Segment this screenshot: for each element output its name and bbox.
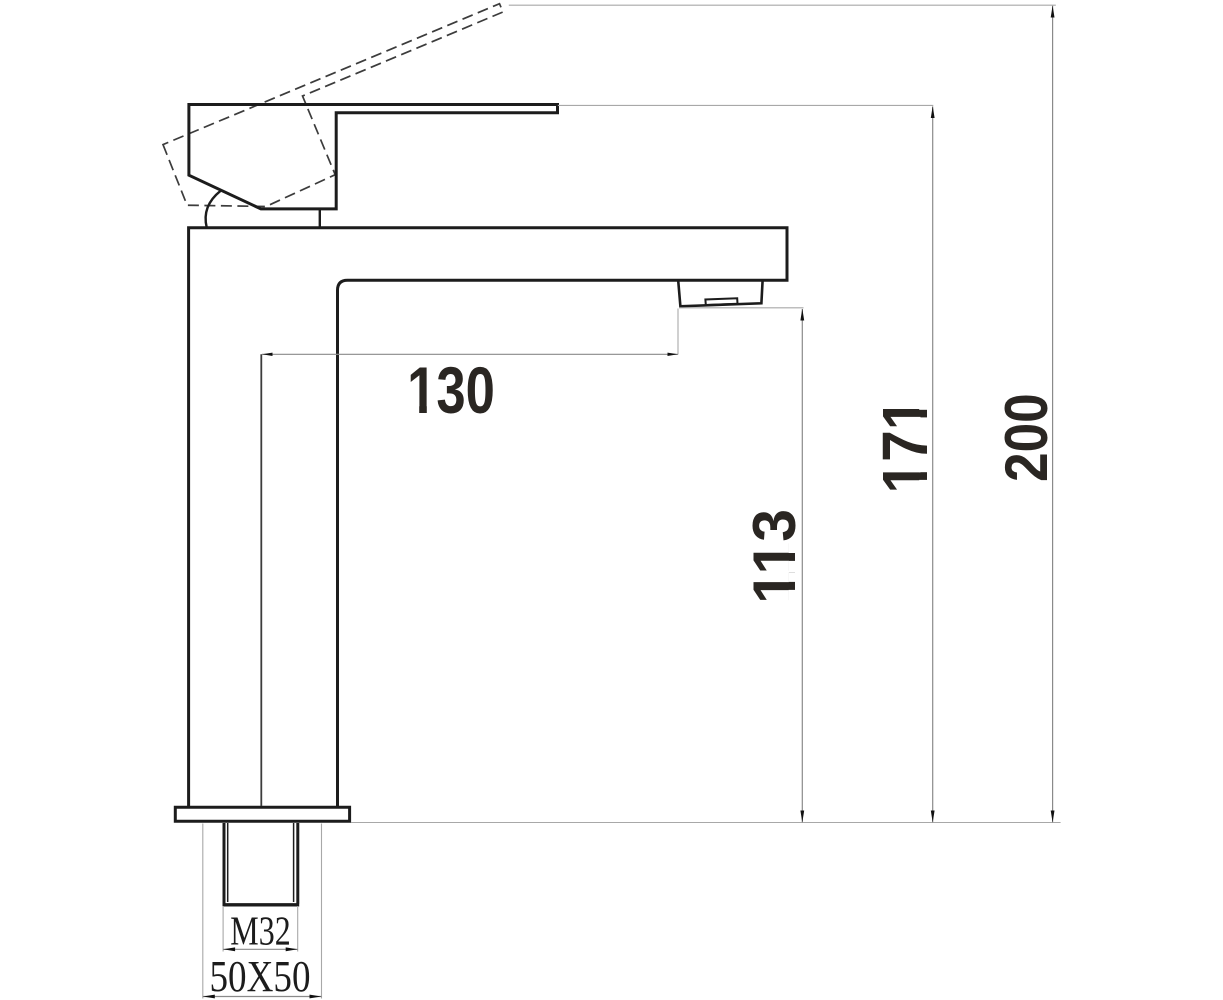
svg-text:130: 130 bbox=[407, 353, 495, 427]
svg-text:M32: M32 bbox=[230, 908, 290, 954]
svg-text:50X50: 50X50 bbox=[210, 951, 311, 1000]
svg-text:171: 171 bbox=[869, 398, 941, 493]
svg-text:113: 113 bbox=[740, 509, 808, 604]
svg-text:200: 200 bbox=[994, 393, 1061, 482]
